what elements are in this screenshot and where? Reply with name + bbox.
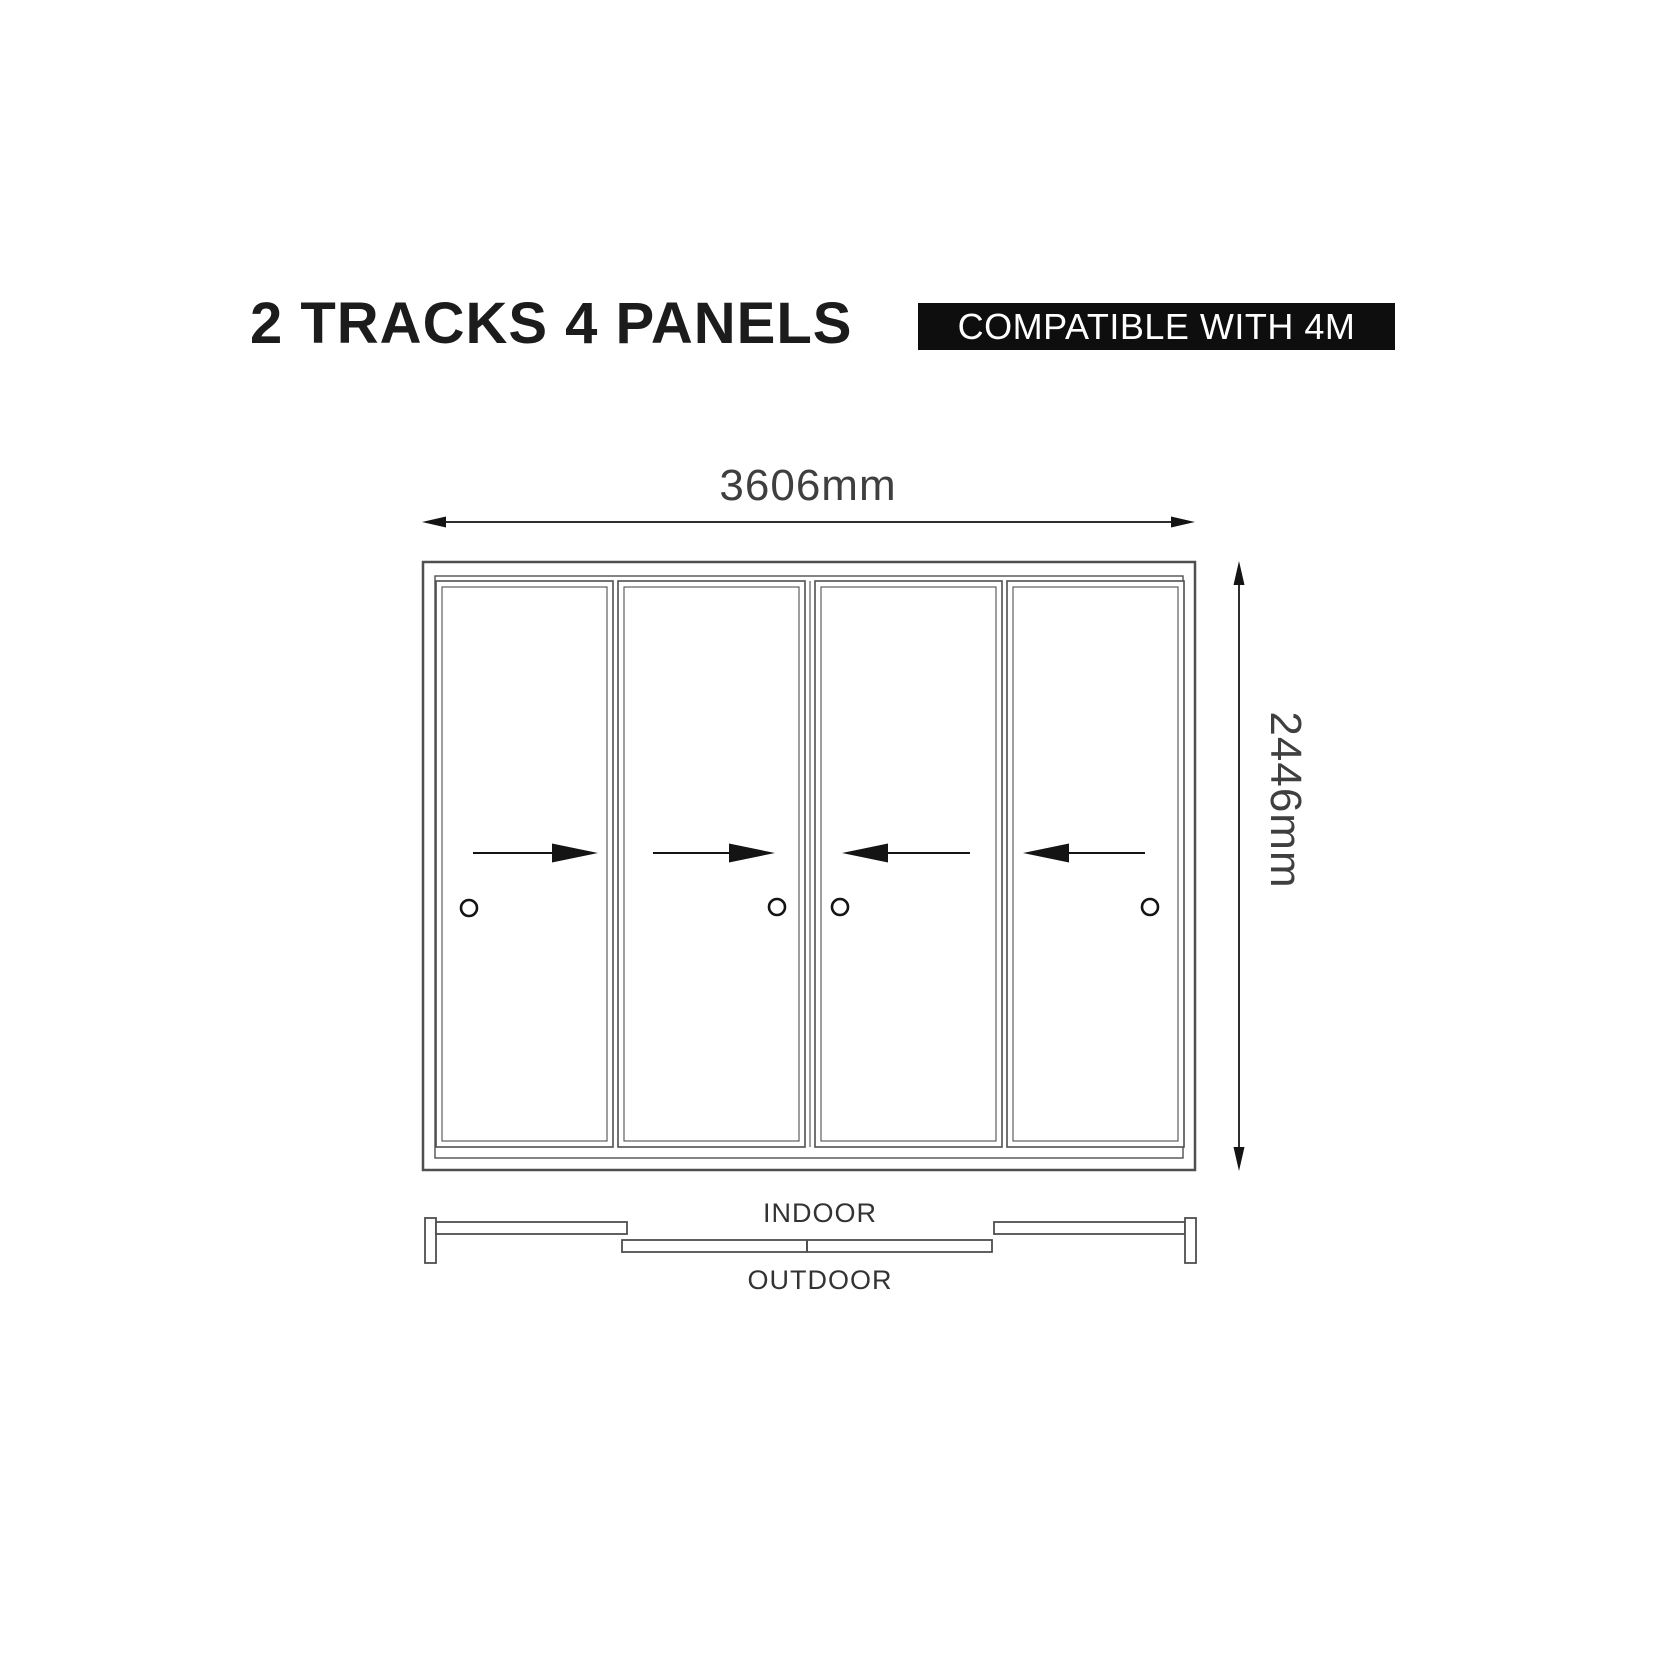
height-dimension-arrowhead-top — [1234, 561, 1245, 585]
width-dimension-arrowhead-left — [422, 517, 446, 528]
outdoor-label: OUTDOOR — [748, 1265, 893, 1295]
width-dimension-arrowhead-right — [1171, 517, 1195, 528]
plan-right-jamb — [1185, 1218, 1196, 1263]
panel-3-handle — [832, 899, 848, 915]
width-dimension: 3606mm — [422, 461, 1195, 528]
panel-1-handle — [461, 900, 477, 916]
door-panels — [436, 581, 1184, 1147]
panel-4 — [1007, 581, 1184, 1147]
panel-3 — [815, 581, 1002, 1147]
height-dimension-arrowhead-bottom — [1234, 1147, 1245, 1171]
panel-1 — [436, 581, 613, 1147]
panel-2-handle — [769, 899, 785, 915]
panel-4-handle — [1142, 899, 1158, 915]
spec-sheet: 2 TRACKS 4 PANELS COMPATIBLE WITH 4M 360… — [0, 0, 1676, 1676]
height-dimension: 2446mm — [1234, 561, 1311, 1171]
height-dimension-label: 2446mm — [1261, 711, 1310, 888]
panel-2 — [618, 581, 805, 1147]
plan-indoor-track-left-panel — [436, 1222, 627, 1234]
door-diagram: 3606mm 2446mm — [0, 0, 1676, 1676]
plan-indoor-track-right-panel — [994, 1222, 1185, 1234]
plan-left-jamb — [425, 1218, 436, 1263]
indoor-label: INDOOR — [763, 1198, 877, 1228]
width-dimension-label: 3606mm — [719, 461, 896, 510]
